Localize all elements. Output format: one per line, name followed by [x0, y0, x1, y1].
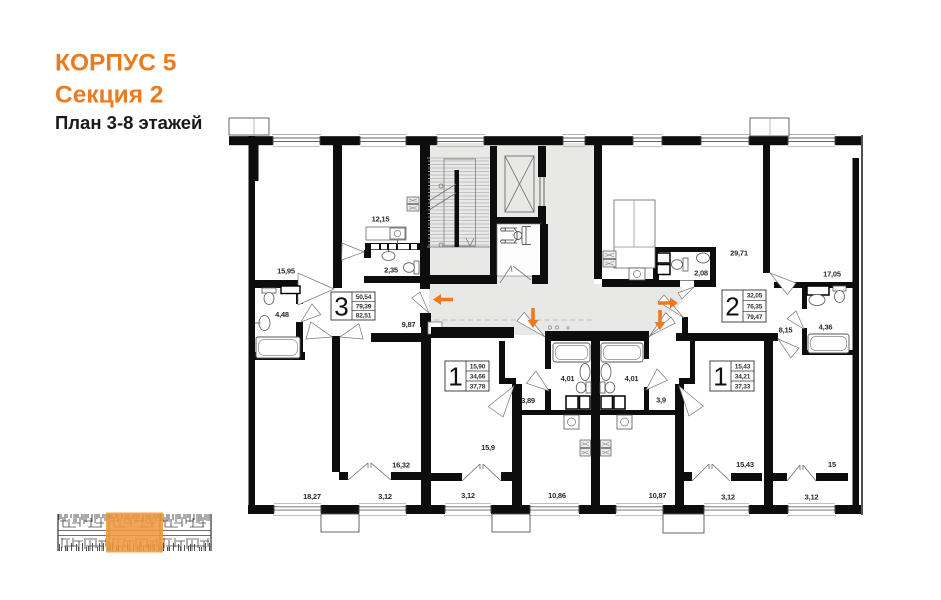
svg-text:3,9: 3,9: [656, 396, 666, 405]
svg-text:10,86: 10,86: [548, 491, 566, 500]
svg-text:15,43: 15,43: [735, 363, 751, 370]
svg-text:3,12: 3,12: [721, 493, 735, 502]
svg-text:15,9: 15,9: [481, 443, 495, 452]
svg-text:10,87: 10,87: [649, 491, 667, 500]
svg-text:37,78: 37,78: [470, 383, 486, 390]
svg-text:4,48: 4,48: [275, 310, 289, 319]
svg-text:79,47: 79,47: [747, 314, 763, 321]
svg-text:4,01: 4,01: [561, 374, 575, 383]
svg-text:18,27: 18,27: [303, 492, 321, 501]
svg-text:9,87: 9,87: [402, 320, 416, 329]
svg-text:3,12: 3,12: [461, 491, 475, 500]
svg-text:17,05: 17,05: [823, 270, 841, 279]
svg-text:КОРПУС 5: КОРПУС 5: [55, 50, 176, 77]
svg-text:15,90: 15,90: [470, 363, 486, 370]
svg-text:15: 15: [828, 460, 836, 469]
svg-text:2,35: 2,35: [384, 266, 398, 275]
svg-text:4,36: 4,36: [819, 323, 833, 332]
svg-text:32,05: 32,05: [747, 293, 763, 300]
svg-text:2,08: 2,08: [694, 269, 708, 278]
svg-text:12,15: 12,15: [372, 215, 390, 224]
svg-text:План 3-8 этажей: План 3-8 этажей: [55, 112, 202, 133]
svg-text:3,12: 3,12: [805, 493, 819, 502]
svg-text:2: 2: [725, 291, 739, 321]
svg-text:16,32: 16,32: [392, 461, 410, 470]
svg-text:79,39: 79,39: [356, 303, 372, 310]
svg-text:29,71: 29,71: [730, 249, 748, 258]
svg-text:50,54: 50,54: [356, 294, 372, 301]
svg-text:34,66: 34,66: [470, 373, 486, 380]
svg-text:34,21: 34,21: [735, 373, 751, 380]
svg-text:37,33: 37,33: [735, 383, 751, 390]
svg-text:Секция 2: Секция 2: [55, 82, 163, 109]
svg-text:1: 1: [448, 361, 462, 391]
svg-text:3: 3: [334, 291, 348, 321]
svg-text:8,15: 8,15: [779, 326, 793, 335]
svg-text:1: 1: [713, 361, 727, 391]
svg-text:3,12: 3,12: [378, 492, 392, 501]
svg-text:76,35: 76,35: [747, 303, 763, 310]
svg-text:3,89: 3,89: [521, 396, 535, 405]
svg-text:4,01: 4,01: [625, 374, 639, 383]
svg-text:15,43: 15,43: [736, 460, 754, 469]
svg-text:82,51: 82,51: [356, 313, 372, 320]
svg-text:15,95: 15,95: [277, 267, 295, 276]
